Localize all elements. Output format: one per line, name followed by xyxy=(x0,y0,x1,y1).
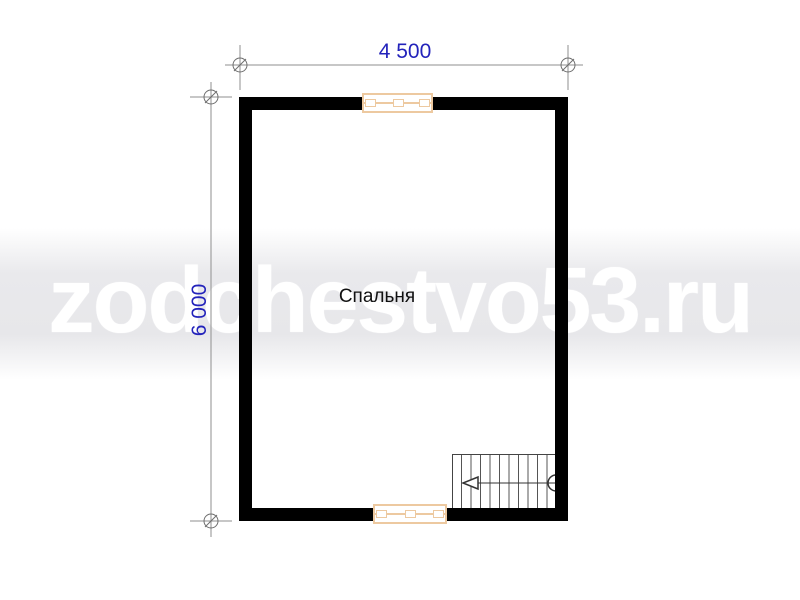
floor-plan-canvas: zodchestvo53.ru 4 500 6 000 xyxy=(0,0,800,600)
window-pane xyxy=(419,99,430,107)
dimension-label-height: 6 000 xyxy=(189,269,211,351)
wall-right xyxy=(555,97,568,521)
window-pane xyxy=(393,99,404,107)
window-pane xyxy=(376,510,387,518)
window-pane xyxy=(405,510,416,518)
window-pane xyxy=(433,510,444,518)
window-top xyxy=(362,93,433,113)
room-label: Спальня xyxy=(327,287,427,307)
stairs-icon xyxy=(452,454,566,510)
stairs xyxy=(452,454,566,510)
wall-left xyxy=(239,97,252,521)
window-pane xyxy=(365,99,376,107)
dimension-label-width: 4 500 xyxy=(340,41,470,63)
window-bottom xyxy=(373,504,447,524)
